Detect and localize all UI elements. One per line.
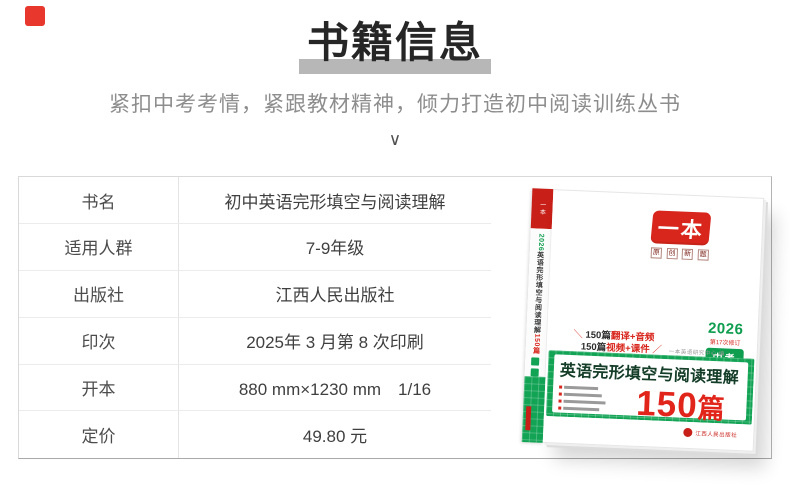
table-value-format: 880 mm×1230 mm 1/16 xyxy=(179,365,491,412)
cover-green-grid: 英语完形填空与阅读理解 150篇 xyxy=(546,350,755,425)
spine-title: 英语完形填空与阅读理解 xyxy=(533,251,543,334)
spine-publisher-strip xyxy=(525,406,531,430)
spine-brand-block: 一本 xyxy=(531,188,554,229)
panel-row: 150篇 xyxy=(558,383,741,426)
spine-count: 150篇 xyxy=(532,334,540,355)
slash-left: ＼ xyxy=(573,329,583,340)
table-label-publisher: 出版社 xyxy=(19,271,179,318)
publisher-name: 江西人民出版社 xyxy=(695,429,737,439)
table-value-publisher: 江西人民出版社 xyxy=(179,271,491,318)
spine-green-grid xyxy=(522,376,546,443)
cover-title-panel: 英语完形填空与阅读理解 150篇 xyxy=(552,355,748,421)
table-label-format: 开本 xyxy=(19,365,179,412)
book-photo-area: 一本 2026英语完形填空与阅读理解150篇 一本 原创新题 xyxy=(491,177,771,458)
corner-red-square-decor xyxy=(25,6,45,26)
book-front-cover: 一本 原创新题 2026 第17次修订 中考 ＼ 150篇翻译+音频 150篇视… xyxy=(543,189,764,452)
table-value-audience: 7-9年级 xyxy=(179,224,491,271)
book-spec-table: 书名 初中英语完形填空与阅读理解 适用人群 7-9年级 出版社 江西人民出版社 … xyxy=(18,176,772,459)
table-label-price: 定价 xyxy=(19,411,179,458)
header: 书籍信息 紧扣中考考情，紧跟教材精神，倾力打造初中阅读训练丛书 ∨ xyxy=(0,0,790,150)
count-number: 150 xyxy=(635,384,698,426)
cover-bullet-list xyxy=(558,383,621,417)
spine-year: 2026 xyxy=(537,234,545,252)
spine-brand-text: 一本 xyxy=(537,202,547,216)
table-value-price: 49.80 元 xyxy=(179,411,491,458)
spine-badges xyxy=(531,357,540,376)
table-value-printing: 2025年 3 月第 8 次印刷 xyxy=(179,318,491,365)
count-unit: 篇 xyxy=(697,394,725,425)
publisher-logo-icon xyxy=(683,428,692,437)
page-title: 书籍信息 xyxy=(307,20,483,66)
feature1-count: 150篇 xyxy=(585,330,611,342)
publisher-emblem: 江西人民出版社 xyxy=(683,428,737,439)
table-value-book-name: 初中英语完形填空与阅读理解 xyxy=(179,177,491,224)
feature1-red: 翻译+音频 xyxy=(611,331,655,344)
table-label-book-name: 书名 xyxy=(19,177,179,224)
chevron-down-icon: ∨ xyxy=(0,130,790,150)
page-subtitle: 紧扣中考考情，紧跟教材精神，倾力打造初中阅读训练丛书 xyxy=(0,88,790,118)
count-150: 150篇 xyxy=(620,385,741,425)
book-cover-image: 一本 2026英语完形填空与阅读理解150篇 一本 原创新题 xyxy=(522,188,764,451)
brand-logo: 一本 xyxy=(650,211,711,246)
book-info-section: 书籍信息 紧扣中考考情，紧跟教材精神，倾力打造初中阅读训练丛书 ∨ 书名 初中英… xyxy=(0,0,790,495)
title-wrap: 书籍信息 xyxy=(307,20,483,66)
spine-title-text: 2026英语完形填空与阅读理解150篇 xyxy=(530,234,545,355)
table-label-audience: 适用人群 xyxy=(19,224,179,271)
brand-slogan: 原创新题 xyxy=(651,247,709,260)
table-label-printing: 印次 xyxy=(19,318,179,365)
